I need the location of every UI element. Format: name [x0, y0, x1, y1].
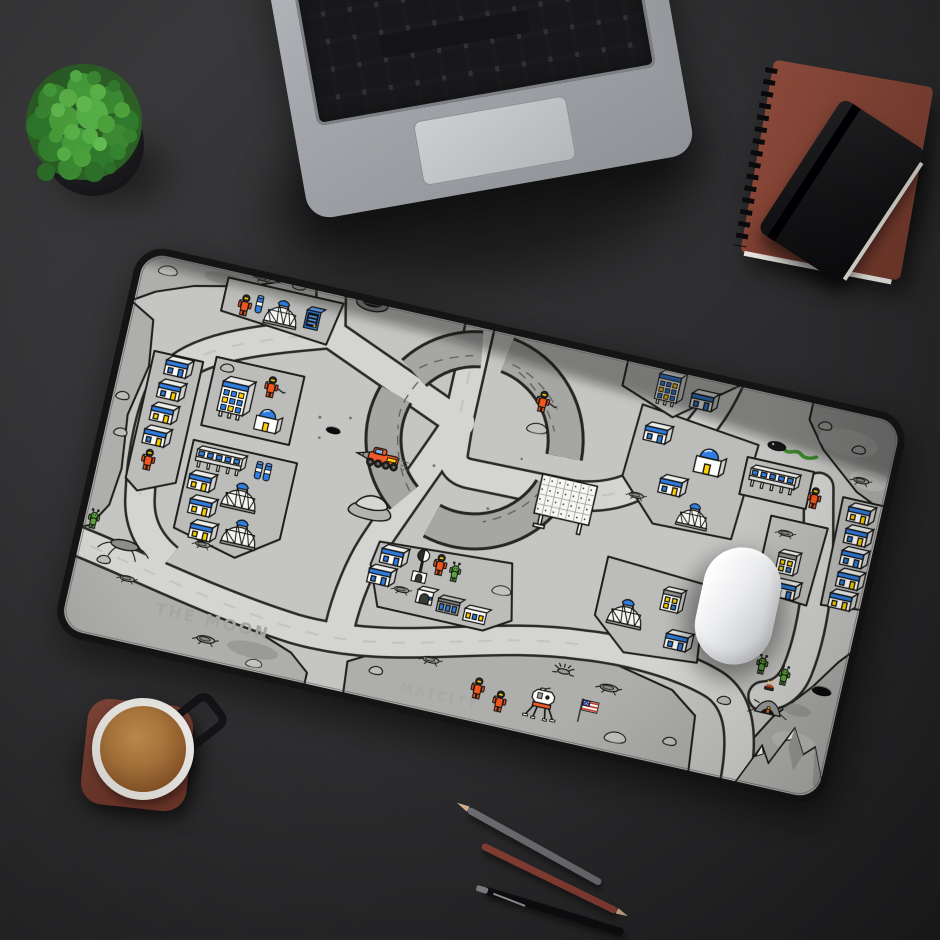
trackpad	[412, 95, 577, 187]
coffee-cup	[92, 698, 194, 800]
laptop-keyboard	[272, 0, 656, 126]
plant-foliage	[6, 48, 166, 208]
pen-clicker	[475, 885, 488, 894]
pen-clip	[493, 893, 525, 907]
desk-scene: { "scene": { "setting": "top-down flat-l…	[0, 0, 940, 940]
black-pen	[483, 886, 625, 936]
pencil-tip	[616, 908, 629, 919]
pencil-tip	[455, 800, 469, 812]
